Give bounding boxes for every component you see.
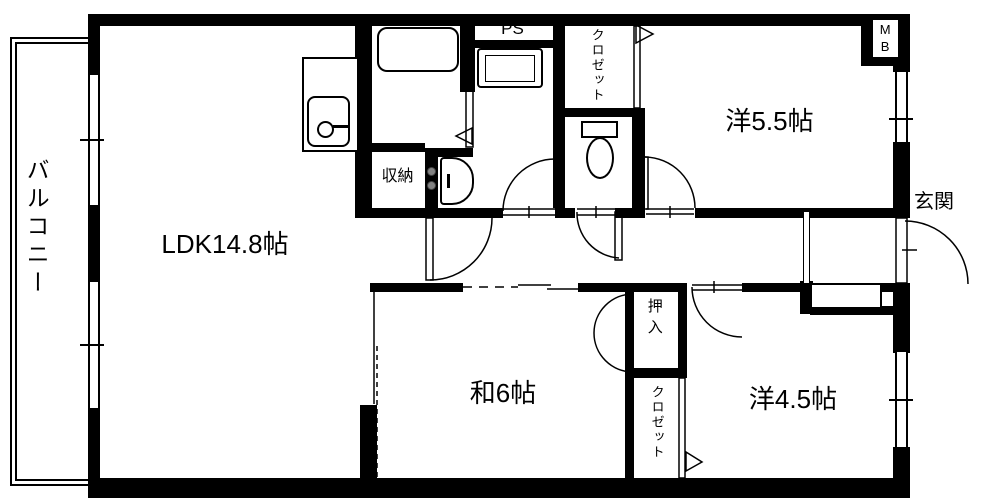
oshiire-label: 押入: [646, 298, 662, 340]
closet-upper-folding-door: [634, 25, 653, 108]
western-room-small-label: 洋4.5帖: [703, 386, 883, 413]
oshiire-doors: [594, 294, 633, 372]
meter-box-label: MB: [878, 22, 892, 56]
japanese-room-label: 和6帖: [428, 380, 578, 407]
bathroom-folding-door: [456, 90, 473, 147]
washroom-door: [503, 159, 555, 218]
entrance-label: 玄関: [914, 192, 954, 213]
floor-plan: バルコニー LDK14.8帖 和6帖 洋5.5帖 洋4.5帖 玄関 PS MB …: [0, 0, 982, 502]
washitsu-sliding-door: [518, 285, 580, 289]
balcony-label: バルコニー: [24, 158, 48, 298]
storage-label: 収納: [370, 169, 425, 186]
bedroom55-door: [642, 157, 695, 218]
closet-lower-folding-door: [679, 378, 702, 478]
entrance-door: [896, 218, 968, 284]
ldk-hall-door: [426, 218, 492, 280]
closet-lower-label: クロゼット: [650, 385, 664, 460]
ldk-label: LDK14.8帖: [130, 231, 320, 258]
bedroom45-door: [692, 281, 742, 337]
toilet-door: [577, 206, 622, 260]
western-room-large-label: 洋5.5帖: [682, 108, 857, 135]
pipe-space-label: PS: [490, 20, 535, 38]
closet-upper-label: クロゼット: [590, 28, 604, 103]
